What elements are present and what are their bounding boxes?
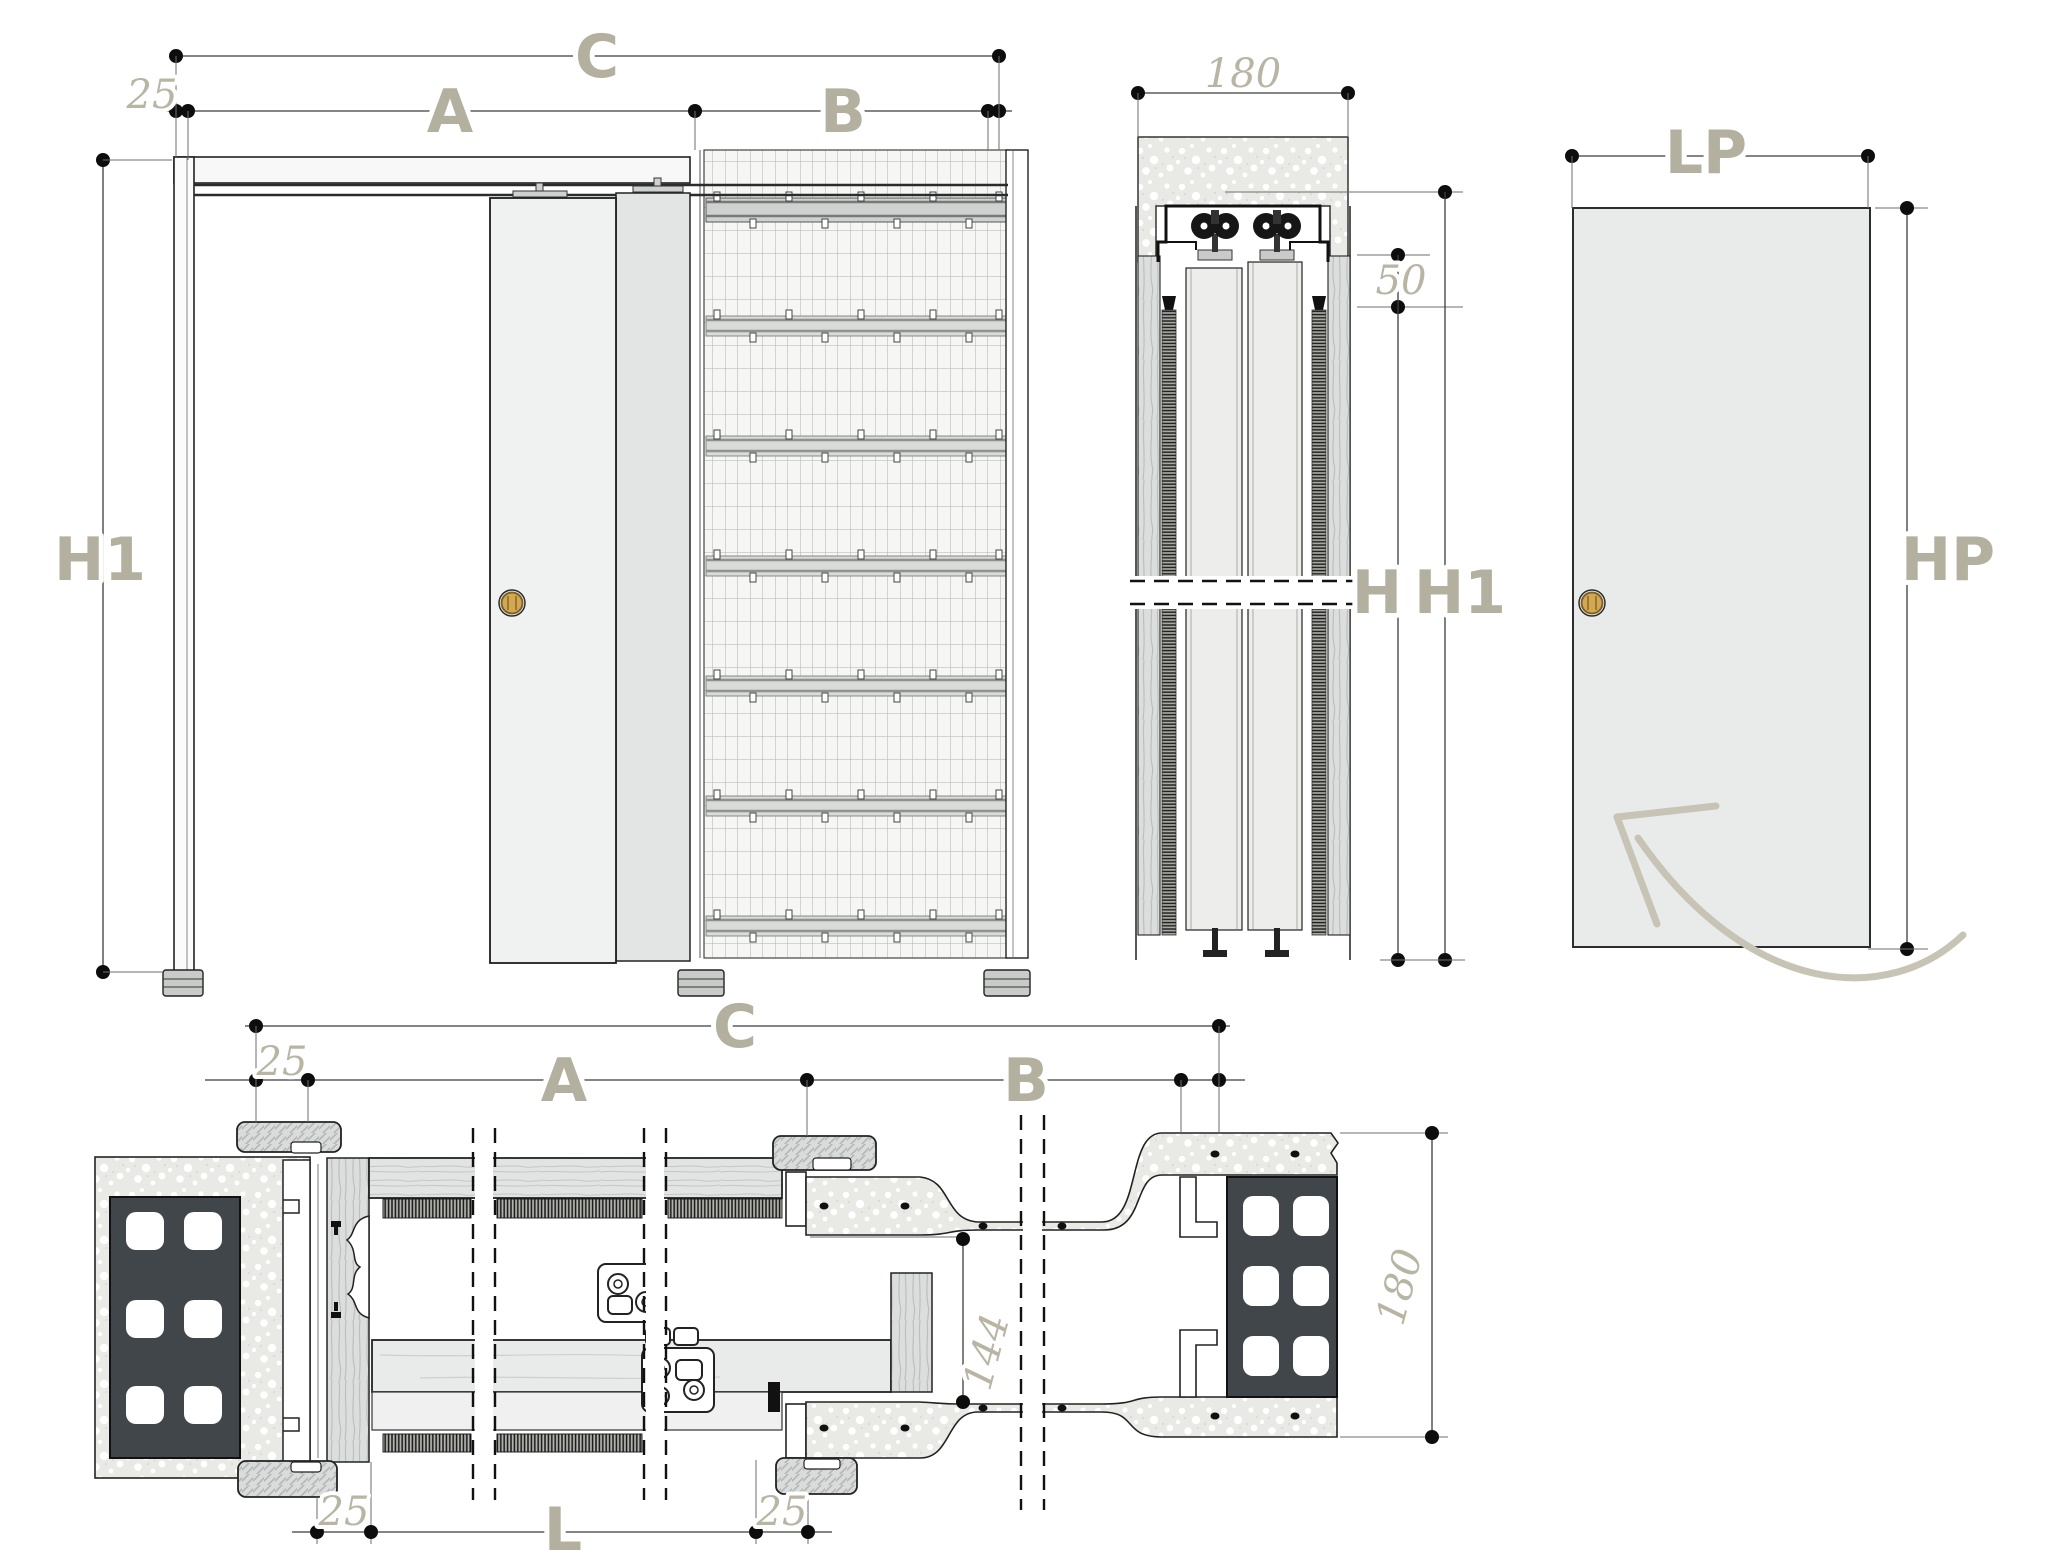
door-leaf-2-plan xyxy=(372,1340,891,1392)
header-lintel xyxy=(174,157,690,183)
dim-label-b: B xyxy=(820,77,866,147)
jamb-closing-profile xyxy=(283,1160,310,1475)
brush-seal xyxy=(497,1199,642,1218)
dim-label-hp: HP xyxy=(1901,525,1995,595)
dim-label-25: 25 xyxy=(126,72,178,118)
brush-seal xyxy=(383,1199,471,1218)
dim-label-25-right: 25 xyxy=(756,1489,808,1535)
dim-label-h: H xyxy=(1352,558,1402,628)
wall-lintel-concrete xyxy=(1138,137,1348,262)
brush-seal xyxy=(668,1199,782,1218)
technical-drawing-page: C A B 25 H1 180 xyxy=(0,0,2046,1561)
cassette-end-upright xyxy=(1006,150,1028,958)
door-under-rail xyxy=(372,1392,782,1430)
front-elevation-view: C A B 25 H1 xyxy=(54,22,1030,996)
pocket-door-drawing: C A B 25 H1 180 xyxy=(0,0,2046,1561)
track-profile xyxy=(1158,206,1328,262)
door-handle-icon xyxy=(1579,590,1605,616)
door-panel-view: LP HP xyxy=(1565,118,1995,978)
dim-label-144: 144 xyxy=(955,1309,1019,1395)
sliding-door-2 xyxy=(616,193,690,961)
dim-label-l: L xyxy=(544,1495,582,1561)
dim-label-25: 25 xyxy=(256,1039,308,1085)
door-handle-icon xyxy=(499,590,525,616)
dim-label-h1: H1 xyxy=(54,525,146,595)
brush-seal xyxy=(497,1434,642,1452)
jamb-post xyxy=(174,157,194,972)
brush-seal xyxy=(383,1434,471,1452)
horizontal-section-view: C A B 25 144 180 25 25 L xyxy=(95,992,1448,1561)
dim-label-50: 50 xyxy=(1376,258,1427,304)
brush-seal xyxy=(1312,310,1326,935)
steel-upright-profiles xyxy=(1180,1177,1217,1397)
door-leading-stile xyxy=(891,1273,932,1392)
dim-label-c: C xyxy=(575,22,619,92)
dim-label-c: C xyxy=(713,992,757,1062)
dim-label-a: A xyxy=(427,77,474,147)
dim-label-lp: LP xyxy=(1665,118,1747,188)
sliding-door-1 xyxy=(490,198,616,963)
roller-trolley-icon xyxy=(1191,210,1301,260)
dim-label-h1: H1 xyxy=(1414,558,1506,628)
door-leaf-1-plan xyxy=(369,1158,782,1198)
floor-guide-icon xyxy=(768,1382,780,1412)
dim-label-180: 180 xyxy=(1205,51,1281,97)
brush-seal xyxy=(1162,310,1176,935)
floor-guide-icon xyxy=(1203,928,1289,957)
dim-label-a: A xyxy=(541,1046,588,1116)
door-panel xyxy=(1573,208,1870,947)
dim-label-b: B xyxy=(1003,1046,1049,1116)
pocket-wall-bottom xyxy=(806,1397,1337,1458)
dim-label-180: 180 xyxy=(1368,1244,1432,1330)
floor-foot xyxy=(163,970,1030,996)
pocket-cassette-mesh xyxy=(704,150,1008,958)
vertical-section-view: 180 50 H H1 xyxy=(1128,51,1506,967)
dim-label-25-left: 25 xyxy=(318,1489,370,1535)
